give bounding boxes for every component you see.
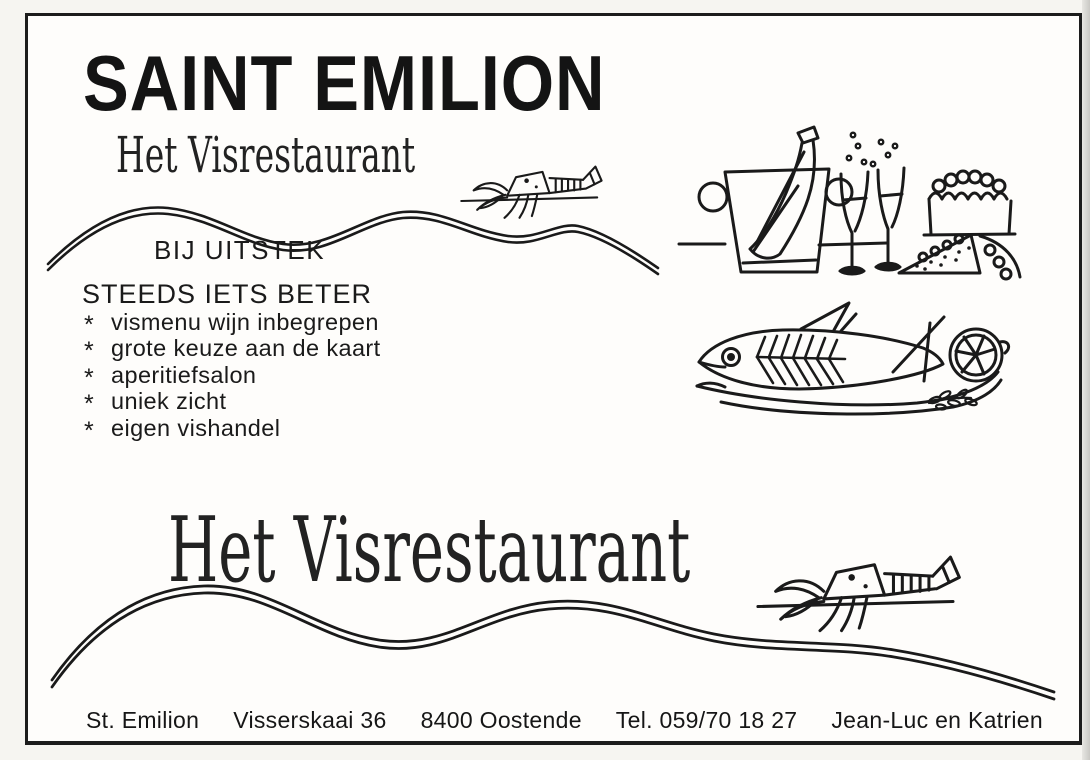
contact-line: St. Emilion Visserskaai 36 8400 Oostende… <box>86 707 1066 734</box>
list-item: *aperitiefsalon <box>84 362 381 388</box>
list-item: *eigen vishandel <box>84 415 381 441</box>
page-title: SAINT EMILION <box>83 44 605 122</box>
ad-frame: SAINT EMILION Het Visrestaurant BIJ UITS… <box>25 13 1082 745</box>
cake-icon <box>899 171 1020 279</box>
footer-city: 8400 Oostende <box>421 707 582 734</box>
footer-phone: Tel. 059/70 18 27 <box>616 707 798 734</box>
list-item: *vismenu wijn inbegrepen <box>84 309 381 335</box>
feature-text: eigen vishandel <box>111 415 280 441</box>
brand-script-small: Het Visrestaurant <box>116 130 415 180</box>
asterisk-bullet: * <box>84 391 111 417</box>
feature-list: *vismenu wijn inbegrepen *grote keuze aa… <box>84 309 381 441</box>
fish-icon <box>699 303 944 389</box>
feature-text: uniek zicht <box>111 388 226 414</box>
bubbles <box>847 133 898 167</box>
asterisk-bullet: * <box>84 312 111 338</box>
fish-platter-illustration <box>683 296 1039 442</box>
scan-edge-shadow <box>1082 0 1090 760</box>
table-line <box>679 243 887 245</box>
champagne-flutes-icon <box>840 133 904 274</box>
lemon-slice-icon <box>950 329 1009 381</box>
footer-name: St. Emilion <box>86 707 199 734</box>
asterisk-bullet: * <box>84 418 111 444</box>
feature-text: grote keuze aan de kaart <box>111 335 381 361</box>
footer-owners: Jean-Luc en Katrien <box>831 707 1043 734</box>
fishbone-pattern <box>757 335 845 385</box>
champagne-and-cake-illustration <box>673 122 1025 298</box>
wave-line-icon <box>44 560 1066 702</box>
wave-line-icon <box>43 186 665 281</box>
footer-street: Visserskaai 36 <box>233 707 386 734</box>
feature-text: aperitiefsalon <box>111 362 256 388</box>
asterisk-bullet: * <box>84 338 111 364</box>
platter-icon <box>697 372 1001 414</box>
list-item: *grote keuze aan de kaart <box>84 335 381 361</box>
champagne-bottle-icon <box>750 127 818 258</box>
tagline-top: BIJ UITSTEK <box>154 235 325 266</box>
tagline-main: STEEDS IETS BETER <box>82 279 372 310</box>
list-item: *uniek zicht <box>84 388 381 414</box>
feature-text: vismenu wijn inbegrepen <box>111 309 379 335</box>
asterisk-bullet: * <box>84 365 111 391</box>
